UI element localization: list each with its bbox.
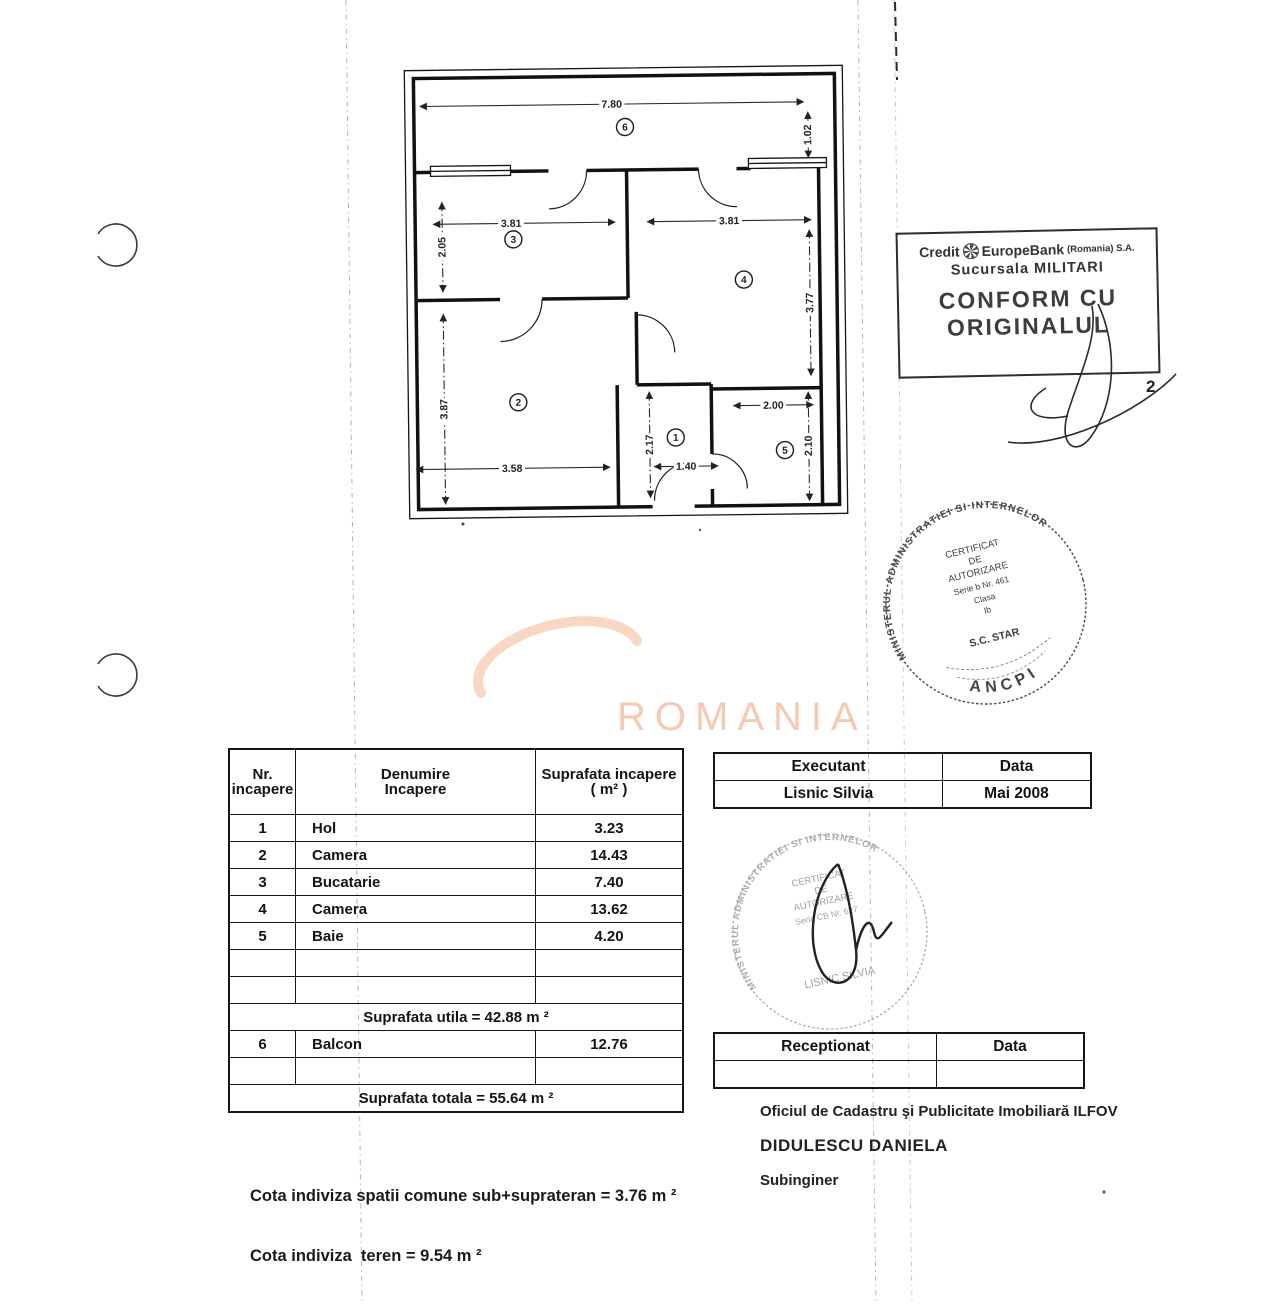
header-text: Nr. [252, 767, 272, 782]
cell-area: 7.40 [536, 869, 682, 896]
cell-name: Balcon [296, 1031, 536, 1058]
fold-line-dark [895, 2, 897, 80]
dimension-label: 1.40 [676, 461, 697, 473]
svg-text:3: 3 [511, 235, 517, 246]
data-value [937, 1061, 1083, 1087]
cell-nr: 6 [230, 1031, 296, 1058]
bank-logo-icon [962, 243, 978, 259]
dimension-label: 3.81 [719, 215, 740, 227]
cell-name [296, 950, 536, 977]
cell-nr [230, 950, 296, 977]
bank-branch-text: Sucursala MILITARI [898, 258, 1156, 279]
room-number-3: 3 [505, 231, 522, 248]
cell-area: 4.20 [536, 923, 682, 950]
dimension-label: 2.05 [436, 237, 448, 258]
cell-name [296, 977, 536, 1004]
cell-nr: 5 [230, 923, 296, 950]
cell-area [536, 1058, 682, 1085]
executant-table: Executant Data Lisnic Silvia Mai 2008 [713, 752, 1092, 809]
receptionat-header: Receptionat [715, 1034, 937, 1061]
cell-nr: 1 [230, 815, 296, 842]
cell-name: Hol [296, 815, 536, 842]
scanned-cadastral-document: ROMANIA [0, 0, 1275, 1305]
stamp-line: S.C. STAR [968, 626, 1021, 650]
room-number-4: 4 [735, 271, 752, 288]
cell-name: Baie [296, 923, 536, 950]
office-name: Oficiul de Cadastru şi Publicitate Imobi… [760, 1103, 1118, 1120]
watermark-text: ROMANIA [617, 695, 862, 739]
bank-stamp-brand: Credit EuropeBank (Romania) S.A. [898, 239, 1156, 260]
window-icon [430, 158, 826, 177]
dimension-label: 3.81 [501, 218, 522, 230]
cell-name: Camera [296, 896, 536, 923]
svg-text:6: 6 [622, 122, 628, 133]
cota-line: Cota indiviza teren = 9.54 m ² [250, 1246, 676, 1266]
svg-text:4: 4 [741, 275, 747, 286]
svg-text:ANCPI: ANCPI [965, 661, 1044, 703]
inspector-title: Subinginer [760, 1172, 1118, 1189]
svg-text:2: 2 [516, 398, 522, 409]
cell-area: 13.62 [536, 896, 682, 923]
receptionat-table: Receptionat Data [713, 1032, 1085, 1089]
header-text: ( m² ) [591, 782, 628, 797]
dimension-label: 7.80 [601, 99, 622, 111]
stamp-ancpi-text: ANCPI [965, 661, 1044, 703]
cell-nr: 3 [230, 869, 296, 896]
table-header-suprafata: Suprafata incapere ( m² ) [536, 750, 682, 815]
scan-noise [1102, 1190, 1105, 1193]
hole-punch-mark [88, 648, 148, 708]
door-arc-icon [499, 169, 748, 503]
svg-text:1: 1 [673, 433, 679, 444]
dimension-label: 2.17 [644, 434, 656, 455]
receptionat-value [715, 1061, 937, 1087]
cell-area: 3.23 [536, 815, 682, 842]
cota-line: Cota indiviza spatii comune sub+suprater… [250, 1186, 676, 1206]
dimension-label: 2.10 [803, 435, 815, 456]
cell-name [296, 1058, 536, 1085]
room-number-1: 1 [667, 429, 684, 446]
cell-nr [230, 1058, 296, 1085]
romania-watermark: ROMANIA [432, 598, 862, 748]
signature-mark: 2 [1146, 377, 1155, 396]
cell-nr: 4 [230, 896, 296, 923]
entrance-opening [653, 499, 695, 512]
cell-area: 12.76 [536, 1031, 682, 1058]
executant-value: Lisnic Silvia [715, 781, 943, 807]
room-number-6: 6 [616, 118, 633, 135]
cell-area [536, 950, 682, 977]
ancpi-round-stamp: MINISTERUL ADMINISTRATIEI SI INTERNELOR … [870, 484, 1102, 724]
plan-interior-walls [415, 168, 824, 510]
stamp-line: Clasa [973, 591, 997, 606]
table-header-denumire: Denumire Incapere [296, 750, 536, 815]
svg-text:5: 5 [782, 446, 788, 457]
dimension-label: 3.77 [804, 292, 816, 313]
data-header: Data [943, 754, 1090, 781]
dimension-label: 3.58 [502, 463, 523, 475]
table-header-nr: Nr. incapere [230, 750, 296, 815]
cell-name: Bucatarie [296, 869, 536, 896]
bank-name-text: EuropeBank [981, 241, 1064, 259]
executant-header: Executant [715, 754, 943, 781]
dimension-label: 3.87 [438, 399, 450, 420]
dimension-label: 2.00 [763, 400, 784, 412]
cell-name: Camera [296, 842, 536, 869]
cell-nr [230, 977, 296, 1004]
room-number-2: 2 [510, 394, 527, 411]
cell-area: 14.43 [536, 842, 682, 869]
header-text: Denumire [381, 767, 450, 782]
floor-plan: 7.80 3.81 3.81 3.58 1.40 2.00 1.02 2.05 … [400, 60, 855, 525]
cell-area [536, 977, 682, 1004]
data-value: Mai 2008 [943, 781, 1090, 807]
data-header: Data [937, 1034, 1083, 1061]
bank-suffix-text: (Romania) S.A. [1067, 242, 1135, 254]
bank-credit-text: Credit [919, 243, 960, 260]
header-text: Suprafata incapere [541, 767, 676, 782]
suprafata-totala-row: Suprafata totala = 55.64 m ² [230, 1085, 682, 1111]
suprafata-utila-row: Suprafata utila = 42.88 m ² [230, 1004, 682, 1031]
room-number-5: 5 [776, 441, 793, 458]
room-area-table: Nr. incapere Denumire Incapere Suprafata… [228, 748, 684, 1113]
dimension-label: 1.02 [802, 124, 814, 145]
inspector-name: DIDULESCU DANIELA [760, 1136, 1118, 1156]
cell-nr: 2 [230, 842, 296, 869]
handwritten-signature [776, 850, 926, 1025]
handwritten-signature: 2 [950, 292, 1180, 472]
stamp-line: Ib [983, 604, 993, 615]
scan-noise [699, 529, 701, 531]
hole-punch-mark [88, 218, 148, 278]
header-text: Incapere [385, 782, 447, 797]
cadastre-office-block: Oficiul de Cadastru şi Publicitate Imobi… [760, 1103, 1118, 1189]
header-text: incapere [232, 782, 294, 797]
cota-indiviza-block: Cota indiviza spatii comune sub+suprater… [250, 1146, 676, 1305]
watermark-swoosh-icon [478, 621, 637, 693]
